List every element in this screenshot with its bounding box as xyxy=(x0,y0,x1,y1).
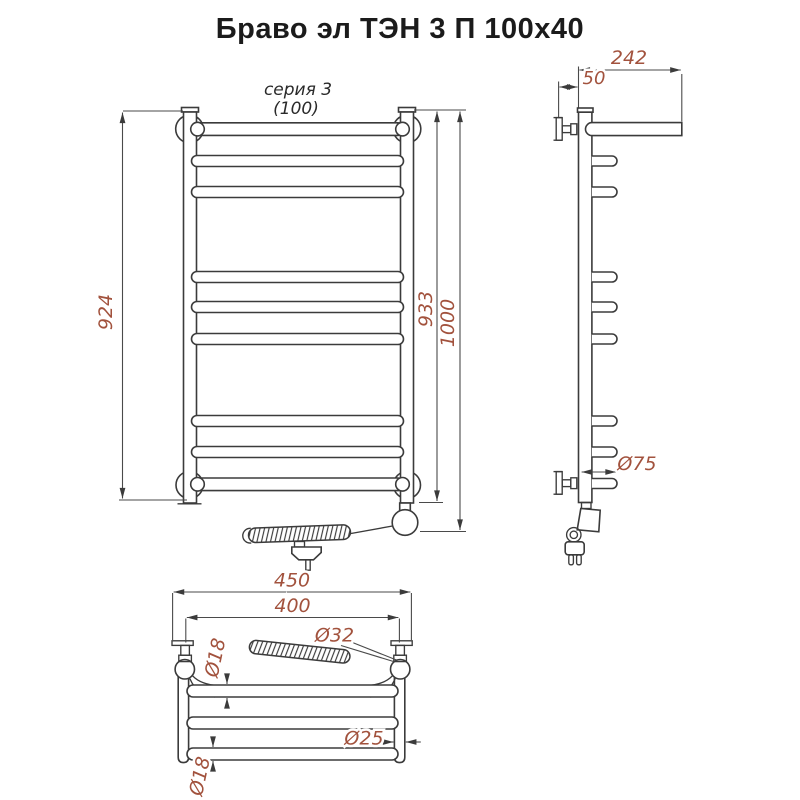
rung-stub xyxy=(592,156,617,166)
rung xyxy=(192,187,404,198)
rung-stub xyxy=(592,416,617,426)
rung-stub xyxy=(592,334,617,344)
cable-ring-inner xyxy=(570,531,577,538)
technical-drawing-page: Браво эл ТЭН 3 П 100x40 серия 3 (100) xyxy=(0,0,800,800)
collector-end-circle xyxy=(175,660,194,679)
wall-bracket-bottom xyxy=(554,472,577,495)
top-shelf-rail-side xyxy=(586,123,682,136)
rung xyxy=(192,416,404,427)
dim-32: Ø32 xyxy=(314,625,354,647)
shelf-bar xyxy=(187,748,398,760)
bottom-view: 450 400 Ø32 Ø25 Ø18 Ø18 xyxy=(172,570,421,799)
cable-ring-outer xyxy=(567,528,581,542)
rung-stub xyxy=(592,479,617,489)
series-size-label: (100) xyxy=(273,99,319,119)
bar-end-joint xyxy=(191,478,205,492)
power-wire xyxy=(351,526,393,534)
dim-25: Ø25 xyxy=(343,728,383,750)
mount-bracket-left-top-view xyxy=(172,641,193,662)
power-plug xyxy=(292,542,321,571)
dim-924: 924 xyxy=(95,294,117,330)
drawing-title: Браво эл ТЭН 3 П 100x40 xyxy=(216,13,584,45)
mount-bracket-right-top-view xyxy=(391,641,412,662)
rung xyxy=(192,334,404,345)
bar-end-joint xyxy=(191,122,205,136)
rung-stub xyxy=(592,447,617,457)
plug-body xyxy=(292,547,321,560)
rung-stub xyxy=(592,272,617,282)
bar-end-joint xyxy=(396,122,410,136)
plug-prong xyxy=(577,555,582,565)
dim-50: 50 xyxy=(583,68,606,89)
collector-end-circle xyxy=(391,660,410,679)
dim-18-top: Ø18 xyxy=(201,636,231,680)
rung-stub xyxy=(592,187,617,197)
power-cord-coil xyxy=(243,525,351,544)
heater-neck-side xyxy=(582,503,592,509)
shelf-side-rail-left xyxy=(178,666,188,763)
plug-prong xyxy=(569,555,574,565)
rung xyxy=(192,156,404,167)
plug-body-side xyxy=(565,542,584,555)
front-view: 924 933 1000 xyxy=(95,108,466,571)
side-view: 242 50 Ø75 xyxy=(554,47,682,565)
rung xyxy=(192,272,404,283)
rung-stub xyxy=(592,302,617,312)
dim-1000: 1000 xyxy=(437,299,459,347)
dim-18-bottom: Ø18 xyxy=(185,755,215,799)
heater-knob xyxy=(392,510,418,536)
bar-end-joint xyxy=(396,478,410,492)
shelf-bar xyxy=(187,685,398,697)
shelf-side-rail-right xyxy=(394,666,404,763)
rung xyxy=(192,447,404,458)
dim-75: Ø75 xyxy=(616,453,656,475)
rung xyxy=(192,302,404,313)
coil-body xyxy=(248,525,350,543)
towel-rail-drawing: Браво эл ТЭН 3 П 100x40 серия 3 (100) xyxy=(0,0,800,800)
dim-933: 933 xyxy=(415,291,437,327)
collector-side xyxy=(579,112,592,502)
dim-400: 400 xyxy=(274,595,310,617)
wall-bracket-top xyxy=(554,118,577,141)
heater-box-side xyxy=(577,509,600,532)
bottom-bar xyxy=(196,478,404,491)
dim-242: 242 xyxy=(611,47,647,69)
top-shelf-bar xyxy=(196,123,404,136)
bend-curve xyxy=(366,676,392,686)
plug-cable-entry xyxy=(295,542,305,548)
dim-450: 450 xyxy=(274,570,310,592)
series-label: серия 3 xyxy=(264,80,332,100)
